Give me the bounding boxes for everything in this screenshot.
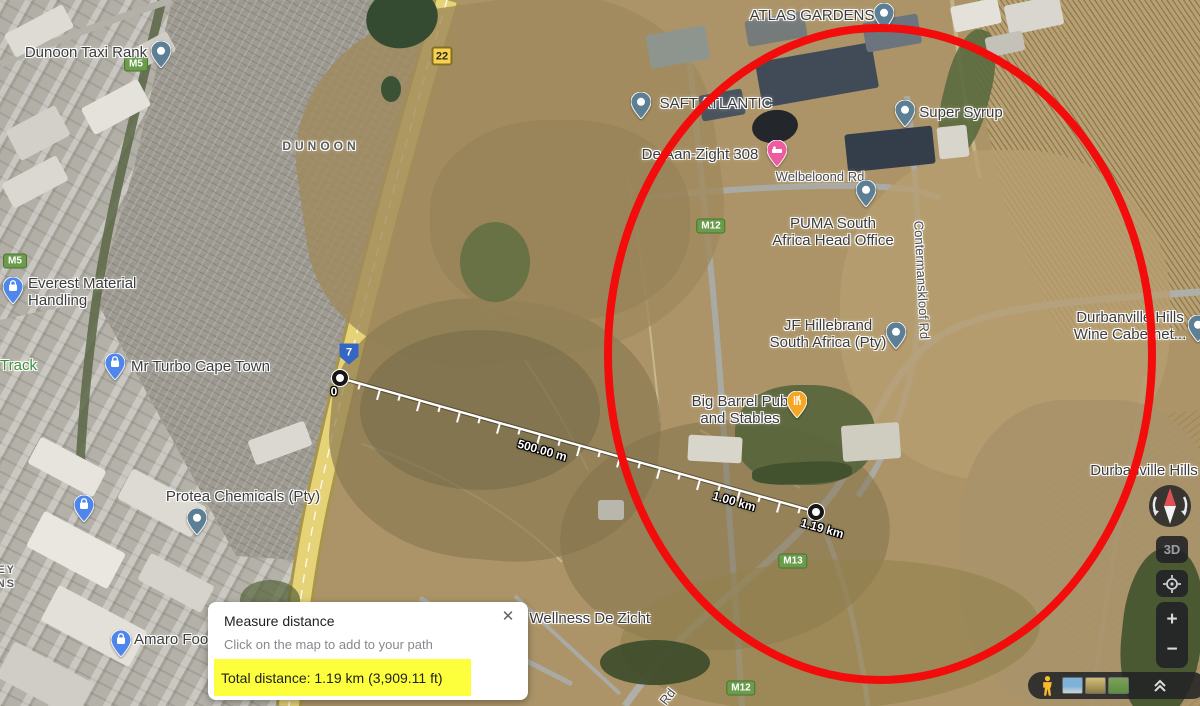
google-maps-screen: Dunoon Taxi RankDUNOONATLAS GARDENSSAFT … [0, 0, 1200, 706]
3d-button[interactable]: 3D [1156, 536, 1188, 563]
total-distance-text: Total distance: 1.19 km (3,909.11 ft) [221, 670, 443, 686]
my-location-button[interactable] [1156, 570, 1188, 597]
3d-button-label: 3D [1164, 542, 1181, 557]
collapse-chevron-button[interactable] [1153, 679, 1167, 693]
dialog-subtitle: Click on the map to add to your path [224, 637, 433, 652]
dialog-title: Measure distance [224, 613, 335, 629]
imagery-bar [1028, 672, 1200, 699]
compass-control[interactable] [1148, 484, 1192, 528]
zoom-in-button[interactable]: + [1156, 606, 1188, 634]
annotation-ellipse [608, 28, 1152, 680]
measure-distance-dialog: Measure distance ✕ Click on the map to a… [208, 602, 528, 700]
zoom-out-button[interactable]: − [1156, 636, 1188, 664]
pegman-icon[interactable] [1042, 676, 1053, 696]
annotation-highlight: Total distance: 1.19 km (3,909.11 ft) [214, 659, 471, 696]
zoom-control: + − [1156, 602, 1188, 668]
close-icon[interactable]: ✕ [498, 606, 518, 626]
imagery-thumbnail[interactable] [1108, 677, 1129, 694]
annotation-layer [0, 0, 1200, 706]
my-location-icon [1163, 575, 1181, 593]
imagery-thumbnail[interactable] [1062, 677, 1083, 694]
imagery-thumbnail[interactable] [1085, 677, 1106, 694]
